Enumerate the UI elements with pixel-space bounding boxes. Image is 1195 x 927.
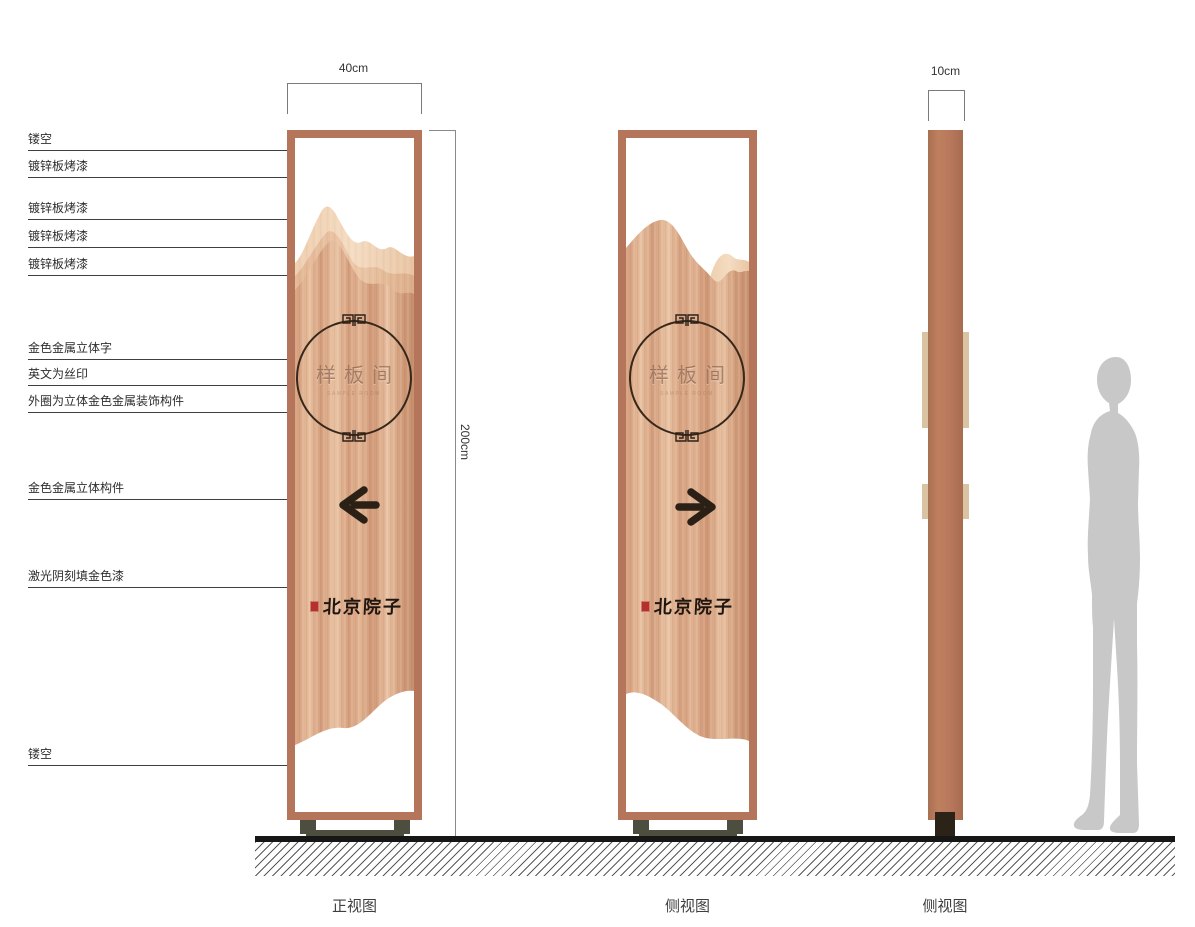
emblem-subtext: SAMPLE ROOM	[327, 391, 381, 397]
annotation-galvanized-2: 镀锌板烤漆	[28, 201, 322, 220]
annotation-galvanized-3: 镀锌板烤漆	[28, 229, 296, 248]
annotation-gold-letters: 金色金属立体字	[28, 341, 330, 360]
dim-line-height	[455, 130, 456, 836]
seal-stamp-icon	[310, 601, 319, 612]
view-caption-front: 正视图	[287, 895, 422, 916]
meander-icon	[341, 429, 367, 442]
annotation-galvanized-4: 镀锌板烤漆	[28, 257, 293, 276]
profile-view-panel	[928, 130, 963, 820]
annotation-hollow-bottom: 镂空	[28, 747, 303, 766]
dim-bracket-width	[287, 83, 422, 114]
arrow-right-icon	[674, 487, 724, 527]
front-panel-artwork	[295, 138, 414, 812]
emblem-ring: 样板间 SAMPLE ROOM	[296, 320, 412, 436]
annotation-laser-engraved: 激光阴刻填金色漆	[28, 569, 290, 588]
dim-label-width: 40cm	[287, 61, 420, 75]
dim-label-depth: 10cm	[908, 64, 983, 78]
dim-label-height: 200cm	[458, 424, 472, 460]
brand-row: 北京院子	[297, 593, 415, 619]
seal-stamp-icon	[641, 601, 650, 612]
emblem-ring: 样板间 SAMPLE ROOM	[629, 320, 745, 436]
side-panel-artwork	[626, 138, 749, 812]
person-silhouette	[1062, 343, 1168, 843]
meander-icon	[341, 314, 367, 327]
design-drawing-canvas: 镂空 镀锌板烤漆 镀锌板烤漆 镀锌板烤漆 镀锌板烤漆 金色金属立体字 英文为丝印…	[0, 0, 1195, 927]
annotation-outer-ring: 外圈为立体金色金属装饰构件	[28, 394, 316, 413]
dim-tick-height	[429, 130, 455, 131]
annotation-hollow-top: 镂空	[28, 132, 307, 151]
meander-icon	[674, 314, 700, 327]
brand-text: 北京院子	[653, 593, 734, 619]
profile-base-foot	[935, 812, 955, 838]
view-caption-side: 侧视图	[618, 895, 757, 916]
emblem-subtext: SAMPLE ROOM	[660, 391, 714, 397]
ground-hatch	[255, 842, 1175, 876]
front-view-panel	[287, 130, 422, 820]
emblem-text: 样板间	[308, 359, 400, 388]
annotation-galvanized-1: 镀锌板烤漆	[28, 159, 288, 178]
brand-row: 北京院子	[626, 593, 749, 619]
meander-icon	[674, 429, 700, 442]
side-view-panel	[618, 130, 757, 820]
annotation-english-silkscreen: 英文为丝印	[28, 367, 330, 386]
arrow-left-icon	[331, 485, 381, 525]
view-caption-profile: 侧视图	[890, 895, 1000, 916]
dim-bracket-depth	[928, 90, 965, 121]
brand-text: 北京院子	[322, 593, 403, 619]
emblem-text: 样板间	[641, 359, 733, 388]
